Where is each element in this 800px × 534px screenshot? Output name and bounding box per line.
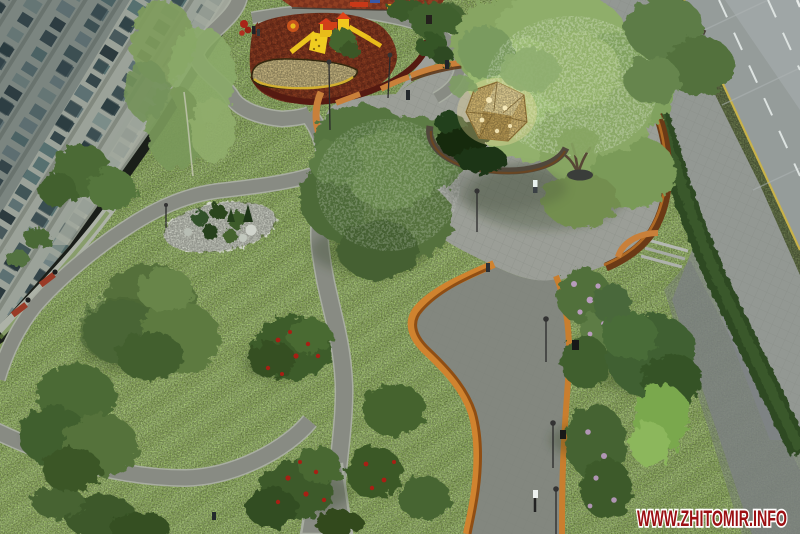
- svg-text:WWW.ZHITOMIR.INFO: WWW.ZHITOMIR.INFO: [637, 506, 787, 531]
